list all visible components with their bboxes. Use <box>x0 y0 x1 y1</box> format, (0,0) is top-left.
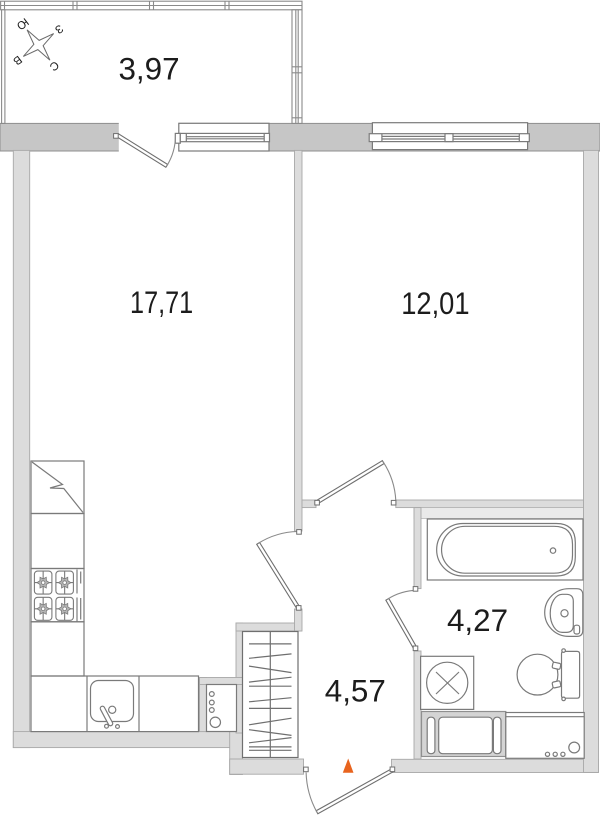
svg-text:17,71: 17,71 <box>130 285 193 320</box>
svg-text:4,27: 4,27 <box>447 603 508 638</box>
svg-text:12,01: 12,01 <box>401 286 469 321</box>
svg-text:С: С <box>47 58 61 73</box>
svg-text:Ю: Ю <box>14 15 31 32</box>
svg-text:4,57: 4,57 <box>325 673 386 708</box>
svg-text:В: В <box>10 53 24 67</box>
svg-text:З: З <box>52 22 65 36</box>
svg-text:3,97: 3,97 <box>118 52 179 87</box>
